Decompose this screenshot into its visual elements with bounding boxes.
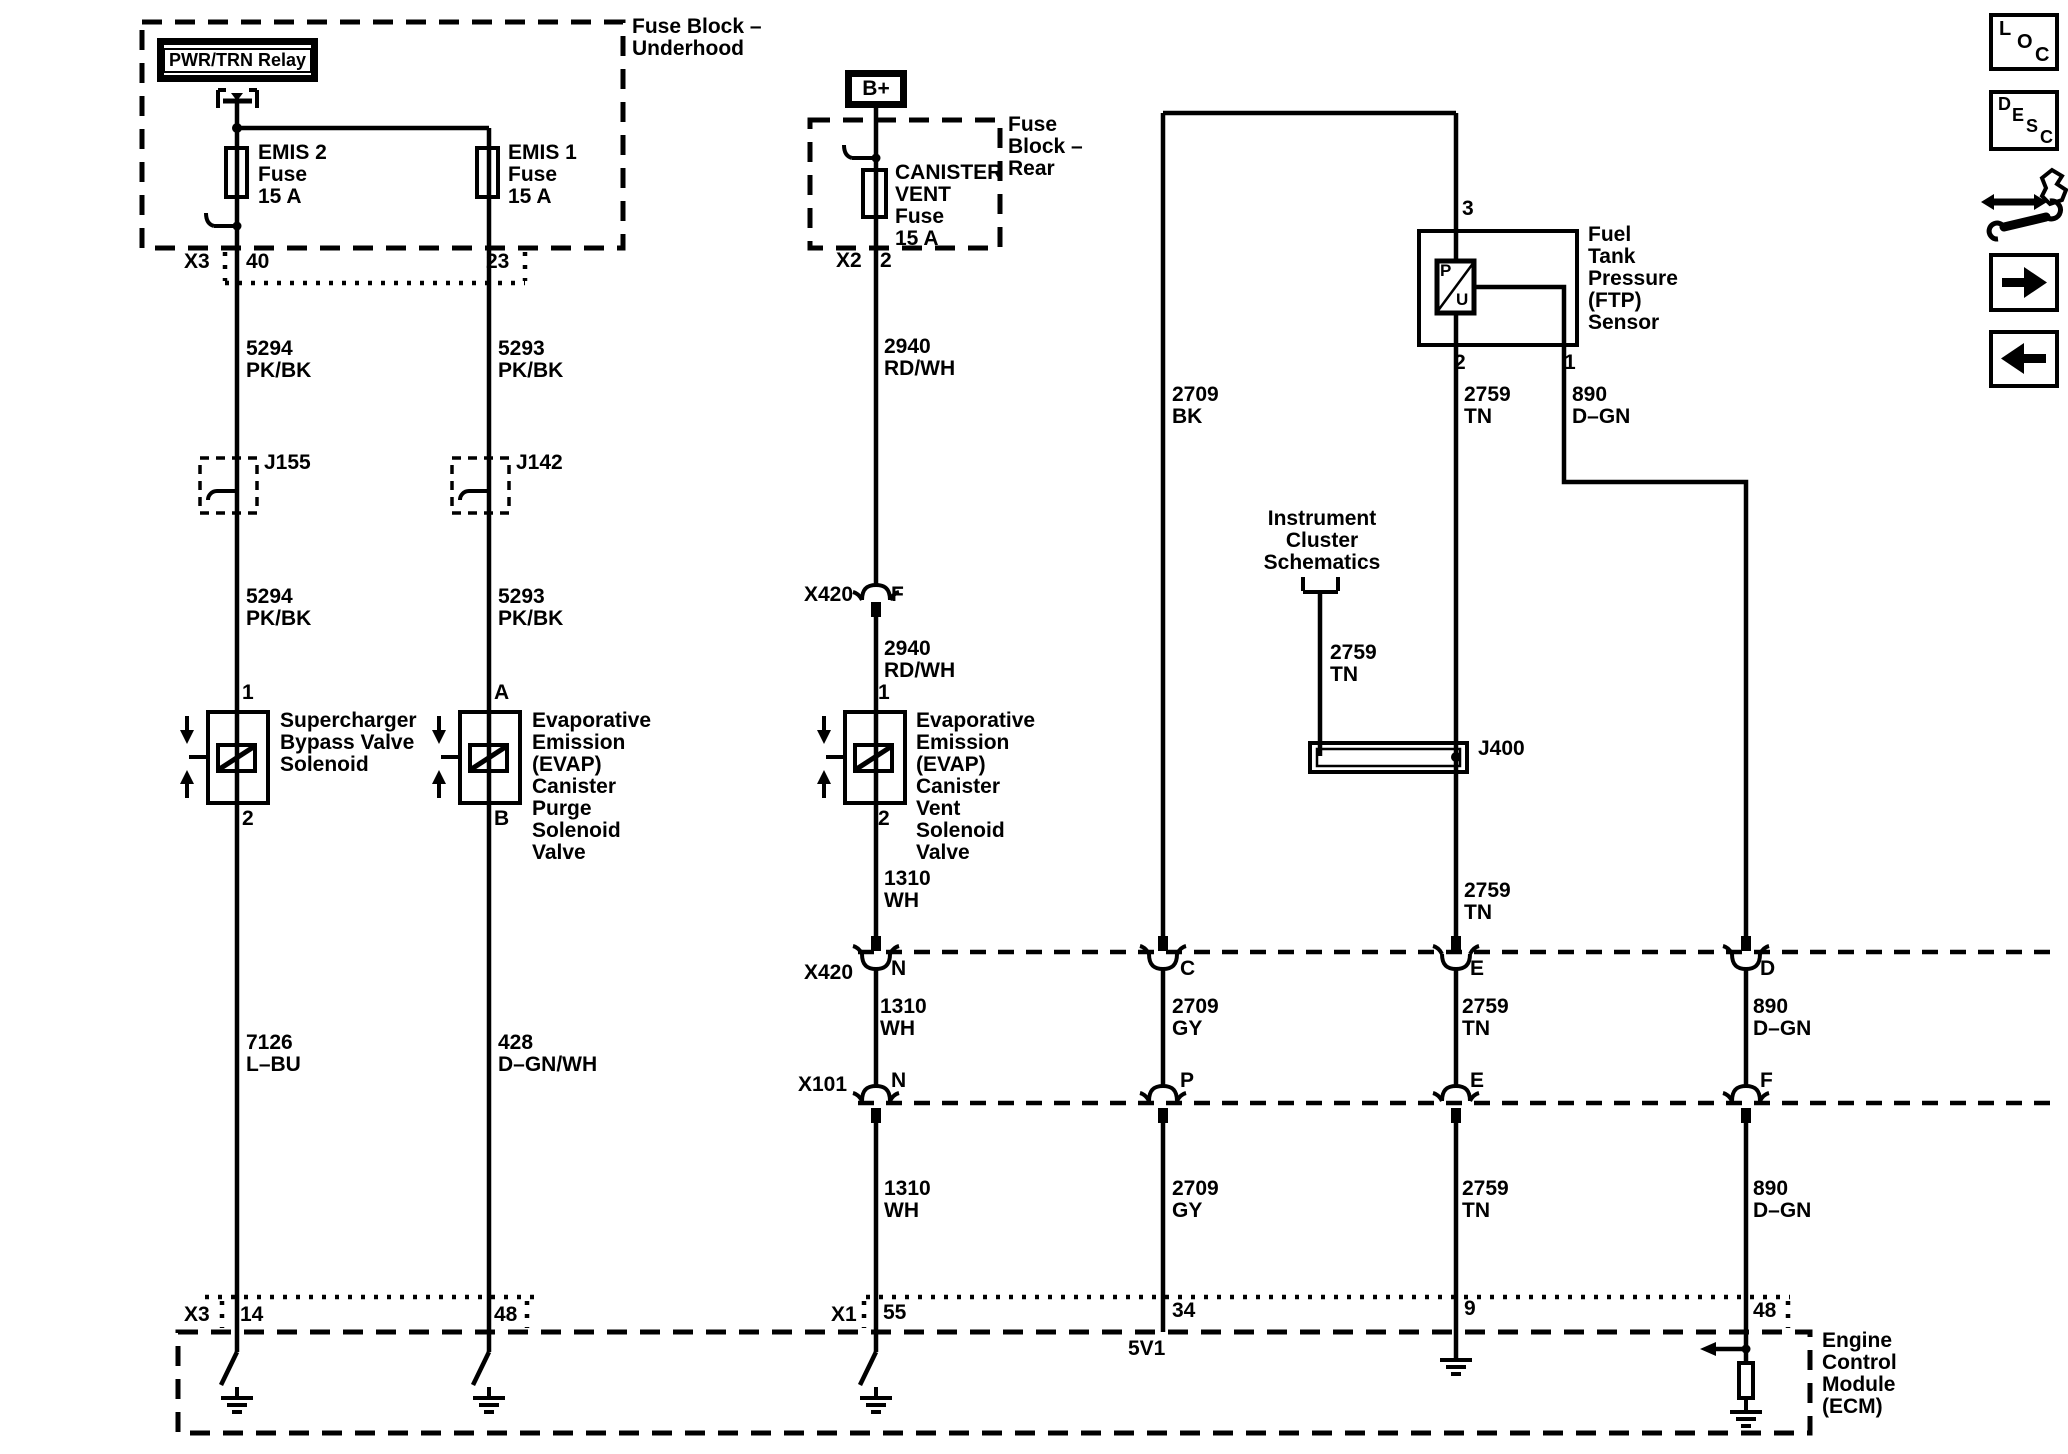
desc-letter-c: C [2040, 127, 2053, 148]
pin-e-x101-label: E [1470, 1070, 1484, 1092]
ftp-sensor-label: Fuel Tank Pressure (FTP) Sensor [1588, 224, 1678, 334]
next-page-button[interactable] [1989, 253, 2059, 312]
pin-p-x101-label: P [1180, 1070, 1194, 1092]
purge-pinA-label: A [494, 682, 509, 704]
pin-f-x420-label: F [891, 584, 904, 606]
ftp-symbol-u: U [1456, 290, 1468, 310]
pin-2-x2-label: 2 [880, 250, 892, 272]
b-plus-box: B+ [845, 70, 907, 108]
pin-e-x420-label: E [1470, 958, 1484, 980]
ecm-outline [178, 1332, 1810, 1433]
wire-7126-label: 7126 L–BU [246, 1032, 301, 1076]
pin-14-label: 14 [240, 1304, 263, 1326]
wire-1310-c-label: 1310 WH [884, 1178, 931, 1222]
vent-pin1-label: 1 [878, 682, 890, 704]
purge-pinB-label: B [494, 808, 509, 830]
splice-j400-symbol [1310, 743, 1467, 772]
fuse-emis1-label: EMIS 1 Fuse 15 A [508, 142, 577, 208]
ground-symbol-ecm-9 [1440, 1360, 1472, 1374]
instrument-cluster-label: Instrument Cluster Schematics [1264, 508, 1381, 574]
pin-f-x101-label: F [1760, 1070, 1773, 1092]
wire-890 [1474, 287, 1751, 1363]
wire-2759-c-label: 2759 TN [1462, 1178, 1509, 1222]
pin-55-label: 55 [883, 1302, 906, 1324]
desc-letter-s: S [2026, 116, 2038, 137]
pin-n-x101-label: N [891, 1070, 906, 1092]
fuse-emis2-label: EMIS 2 Fuse 15 A [258, 142, 327, 208]
left-arrow-icon [1993, 334, 2055, 384]
splice-j142-outline [452, 458, 509, 513]
wire-1310-b-label: 1310 WH [880, 996, 927, 1040]
splice-j142-label: J142 [516, 452, 563, 474]
splice-j400-label: J400 [1478, 738, 1525, 760]
previous-page-button[interactable] [1989, 330, 2059, 388]
wire-1310-a-label: 1310 WH [884, 868, 931, 912]
loc-letter-c: C [2035, 44, 2049, 67]
pin-48-right-label: 48 [1753, 1300, 1776, 1322]
desc-letter-e: E [2012, 105, 2024, 126]
evap-vent-solenoid-symbol [817, 712, 905, 803]
ftp-pin3-label: 3 [1462, 198, 1474, 220]
vent-pin2-label: 2 [878, 808, 890, 830]
vent-solenoid-label: Evaporative Emission (EVAP) Canister Ven… [916, 710, 1035, 864]
connector-x3-bottom-label: X3 [184, 1304, 210, 1326]
desc-button[interactable]: D E S C [1989, 90, 2059, 151]
pin-48-left-label: 48 [494, 1304, 517, 1326]
wire-428-label: 428 D–GN/WH [498, 1032, 597, 1076]
connector-x1-strip [864, 1297, 1790, 1328]
pin-9-label: 9 [1464, 1298, 1476, 1320]
connector-x101-label: X101 [798, 1074, 847, 1096]
pin-23-label: 23 [486, 251, 509, 273]
wire-890-b-label: 890 D–GN [1753, 996, 1811, 1040]
wiring-diagram-page: PWR/TRN Relay B+ Fuse Block – Underhood … [0, 0, 2068, 1454]
pwr-trn-relay-label: PWR/TRN Relay [163, 48, 312, 73]
ftp-pin2-label: 2 [1454, 352, 1466, 374]
resistor-symbol-ecm-48 [1730, 1363, 1762, 1426]
b-plus-label: B+ [862, 77, 889, 101]
wire-5293-mid-label: 5293 PK/BK [498, 586, 563, 630]
ground-symbol-ecm-55 [860, 1387, 892, 1412]
wire-2709bk-label: 2709 BK [1172, 384, 1219, 428]
wire-2940-top-label: 2940 RD/WH [884, 336, 955, 380]
evap-purge-solenoid-symbol [432, 712, 520, 803]
net-5v1-label: 5V1 [1128, 1338, 1165, 1360]
connector-x420-label: X420 [804, 962, 853, 984]
wire-2759-mid-label: 2759 TN [1464, 880, 1511, 924]
ecm-label: Engine Control Module (ECM) [1822, 1330, 1897, 1418]
pin-n-x420-label: N [891, 958, 906, 980]
desc-letter-d: D [1998, 94, 2011, 115]
connector-x2-label: X2 [836, 250, 862, 272]
splice-j155-label: J155 [264, 452, 311, 474]
loc-letter-o: O [2017, 31, 2033, 54]
loc-button[interactable]: L O C [1989, 13, 2059, 71]
fuse-block-rear-label: Fuse Block – Rear [1008, 114, 1083, 180]
pin-34-label: 34 [1172, 1300, 1195, 1322]
pwr-trn-relay-box: PWR/TRN Relay [157, 38, 318, 82]
loc-letter-l: L [1999, 18, 2011, 41]
fuse-block-underhood-label: Fuse Block – Underhood [632, 16, 762, 60]
right-arrow-icon [1993, 257, 2055, 308]
wire-5293-top-label: 5293 PK/BK [498, 338, 563, 382]
wire-5294-mid-label: 5294 PK/BK [246, 586, 311, 630]
wire-2709gy-a-label: 2709 GY [1172, 996, 1219, 1040]
pin-c-x420-label: C [1180, 958, 1195, 980]
connector-x420f-label: X420 [804, 584, 853, 606]
wrench-arrow-icon[interactable] [1981, 170, 2066, 239]
wire-2759-top-label: 2759 TN [1464, 384, 1511, 428]
wire-2709gy-b-label: 2709 GY [1172, 1178, 1219, 1222]
wire-2759-b-label: 2759 TN [1462, 996, 1509, 1040]
supercharger-pin1-label: 1 [242, 682, 254, 704]
splice-j155-outline [200, 458, 257, 513]
pin-d-x420-label: D [1760, 958, 1775, 980]
wire-890-c-label: 890 D–GN [1753, 1178, 1811, 1222]
wire-890-top-label: 890 D–GN [1572, 384, 1630, 428]
ground-symbol-ecm-14 [221, 1387, 253, 1412]
wire-2940-mid-label: 2940 RD/WH [884, 638, 955, 682]
ftp-pin1-label: 1 [1564, 352, 1576, 374]
supercharger-solenoid-symbol [180, 712, 268, 803]
supercharger-solenoid-label: Supercharger Bypass Valve Solenoid [280, 710, 417, 776]
fuse-canister-vent-label: CANISTER VENT Fuse 15 A [895, 162, 1002, 250]
ground-symbol-ecm-48l [473, 1387, 505, 1412]
supercharger-pin2-label: 2 [242, 808, 254, 830]
connector-x3-top-strip [225, 252, 525, 283]
wire-2759-cluster-label: 2759 TN [1330, 642, 1377, 686]
connector-x1-label: X1 [831, 1304, 857, 1326]
pin-40-label: 40 [246, 251, 269, 273]
ftp-symbol-p: P [1440, 261, 1451, 281]
wire-5294-top-label: 5294 PK/BK [246, 338, 311, 382]
purge-solenoid-label: Evaporative Emission (EVAP) Canister Pur… [532, 710, 651, 864]
wire-2709 [1163, 113, 1456, 1332]
connector-x3-top-label: X3 [184, 251, 210, 273]
